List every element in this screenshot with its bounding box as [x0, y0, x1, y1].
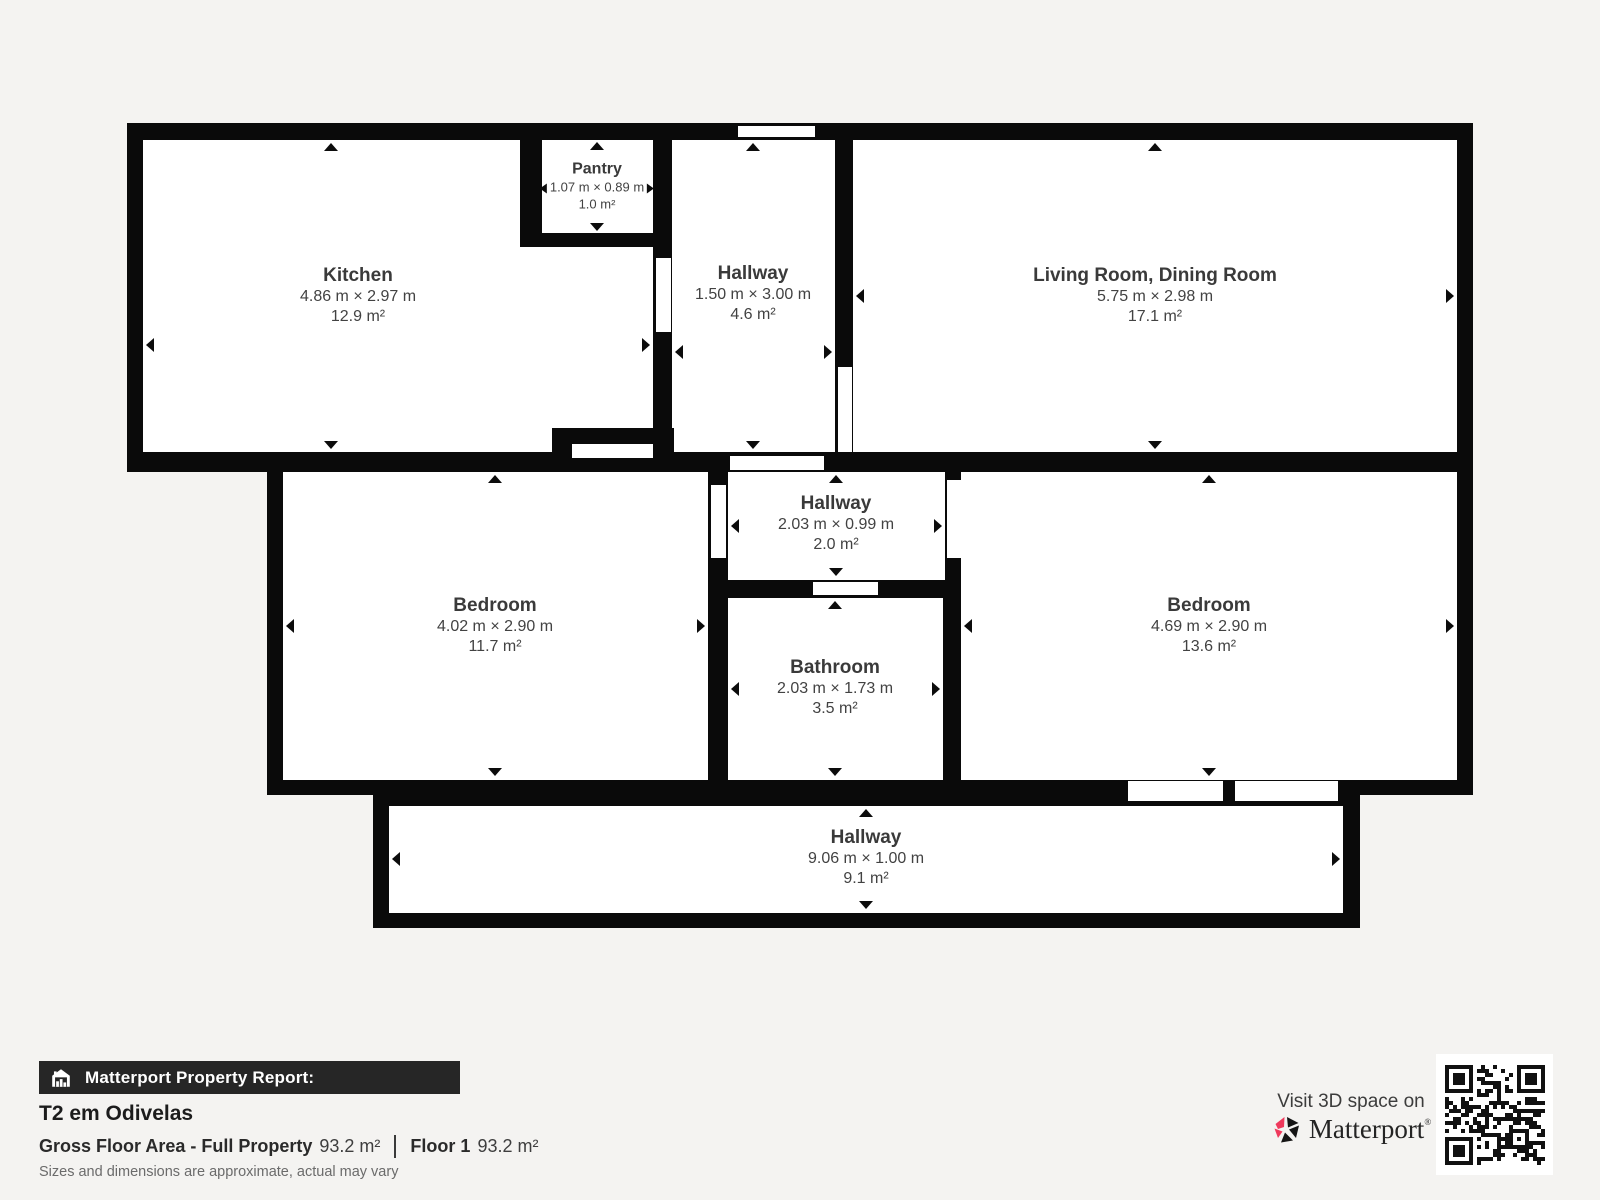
- dimension-arrow-right-icon: [1332, 852, 1340, 866]
- room-area: 1.0 m²: [540, 196, 654, 213]
- door-opening-bottom-hall-2: [1235, 781, 1338, 801]
- door-opening-kitchen-bottom: [572, 444, 653, 458]
- gross-floor-area-label: Gross Floor Area - Full Property: [39, 1136, 312, 1157]
- door-opening-entrance: [738, 126, 815, 137]
- dimension-arrow-down-icon: [1148, 441, 1162, 449]
- room-dimensions: 4.02 m × 2.90 m: [437, 617, 553, 637]
- room-name: Living Room, Dining Room: [1033, 265, 1277, 287]
- dimension-arrow-up-icon: [828, 601, 842, 609]
- dimension-arrow-right-icon: [1446, 289, 1454, 303]
- dimension-arrow-right-icon: [642, 338, 650, 352]
- dimension-arrow-up-icon: [1202, 475, 1216, 483]
- matterport-logo-icon: [1271, 1115, 1302, 1145]
- room-label-bedroom-right: Bedroom 4.69 m × 2.90 m 13.6 m²: [1151, 595, 1267, 657]
- dimension-arrow-left-icon: [286, 619, 294, 633]
- door-opening-bedroom-left: [711, 485, 726, 558]
- room-name: Bedroom: [1151, 595, 1267, 617]
- room-dimensions: 9.06 m × 1.00 m: [808, 849, 924, 869]
- divider: [394, 1135, 396, 1158]
- matterport-link[interactable]: Matterport®: [1249, 1114, 1453, 1145]
- room-label-living-dining: Living Room, Dining Room 5.75 m × 2.98 m…: [1033, 265, 1277, 327]
- door-opening-hallway-living: [838, 367, 852, 452]
- room-label-bathroom: Bathroom 2.03 m × 1.73 m 3.5 m²: [777, 657, 893, 719]
- room-area: 2.0 m²: [778, 535, 894, 555]
- room-name: Hallway: [808, 827, 924, 849]
- dimension-arrow-down-icon: [590, 223, 604, 231]
- property-report-page: Kitchen 4.86 m × 2.97 m 12.9 m² Pantry 1…: [0, 0, 1600, 1200]
- house-chart-icon: [50, 1067, 72, 1089]
- dimension-arrow-right-icon: [647, 183, 654, 193]
- room-dimensions: 5.75 m × 2.98 m: [1033, 287, 1277, 307]
- dimension-arrow-right-icon: [932, 682, 940, 696]
- dimension-arrow-up-icon: [590, 142, 604, 150]
- room-name: Hallway: [695, 263, 811, 285]
- door-opening-bedroom-right: [947, 480, 961, 558]
- report-banner-label: Matterport Property Report:: [85, 1068, 314, 1088]
- dimension-arrow-left-icon: [146, 338, 154, 352]
- dimension-arrow-left-icon: [392, 852, 400, 866]
- room-name: Kitchen: [300, 265, 416, 287]
- dimension-arrow-up-icon: [746, 143, 760, 151]
- room-name: Hallway: [778, 493, 894, 515]
- dimension-arrow-up-icon: [1148, 143, 1162, 151]
- room-area: 17.1 m²: [1033, 307, 1277, 327]
- property-title: T2 em Odivelas: [39, 1102, 193, 1126]
- floor-value: 93.2 m²: [477, 1136, 538, 1157]
- door-opening-hallways: [730, 456, 824, 470]
- room-area: 11.7 m²: [437, 637, 553, 657]
- disclaimer-text: Sizes and dimensions are approximate, ac…: [39, 1164, 398, 1180]
- room-area: 13.6 m²: [1151, 637, 1267, 657]
- dimension-arrow-up-icon: [324, 143, 338, 151]
- room-area: 12.9 m²: [300, 307, 416, 327]
- visit-3d-label: Visit 3D space on: [1249, 1091, 1453, 1113]
- door-opening-bathroom: [813, 582, 878, 595]
- dimension-arrow-left-icon: [731, 519, 739, 533]
- room-label-hallway-middle: Hallway 2.03 m × 0.99 m 2.0 m²: [778, 493, 894, 555]
- room-area: 3.5 m²: [777, 699, 893, 719]
- dimension-arrow-right-icon: [697, 619, 705, 633]
- room-label-hallway-top: Hallway 1.50 m × 3.00 m 4.6 m²: [695, 263, 811, 325]
- dimension-arrow-down-icon: [488, 768, 502, 776]
- registered-mark: ®: [1424, 1117, 1431, 1127]
- dimension-arrow-up-icon: [829, 475, 843, 483]
- dimension-arrow-down-icon: [859, 901, 873, 909]
- dimension-arrow-right-icon: [934, 519, 942, 533]
- room-name: Bathroom: [777, 657, 893, 679]
- dimension-arrow-left-icon: [540, 183, 547, 193]
- room-label-hallway-bottom: Hallway 9.06 m × 1.00 m 9.1 m²: [808, 827, 924, 889]
- room-name: Bedroom: [437, 595, 553, 617]
- dimension-arrow-right-icon: [1446, 619, 1454, 633]
- dimension-arrow-down-icon: [746, 441, 760, 449]
- room-label-bedroom-left: Bedroom 4.02 m × 2.90 m 11.7 m²: [437, 595, 553, 657]
- dimension-arrow-down-icon: [829, 568, 843, 576]
- dimension-arrow-left-icon: [675, 345, 683, 359]
- room-label-pantry: Pantry 1.07 m × 0.89 m 1.0 m²: [540, 160, 654, 213]
- room-dimensions: 1.07 m × 0.89 m: [540, 179, 654, 196]
- dimension-arrow-left-icon: [856, 289, 864, 303]
- report-banner: Matterport Property Report:: [39, 1061, 460, 1094]
- room-label-kitchen: Kitchen 4.86 m × 2.97 m 12.9 m²: [300, 265, 416, 327]
- room-area: 4.6 m²: [695, 305, 811, 325]
- room-name: Pantry: [540, 160, 654, 179]
- door-opening-bottom-hall-1: [1128, 781, 1223, 801]
- gross-floor-area-value: 93.2 m²: [319, 1136, 380, 1157]
- room-dimensions: 1.50 m × 3.00 m: [695, 285, 811, 305]
- floor-label: Floor 1: [410, 1136, 470, 1157]
- dimension-arrow-up-icon: [488, 475, 502, 483]
- room-dimensions: 2.03 m × 1.73 m: [777, 679, 893, 699]
- qr-code-pattern: [1445, 1065, 1545, 1165]
- dimension-arrow-left-icon: [731, 682, 739, 696]
- room-dimensions: 4.69 m × 2.90 m: [1151, 617, 1267, 637]
- dimension-arrow-up-icon: [859, 809, 873, 817]
- dimension-arrow-down-icon: [324, 441, 338, 449]
- matterport-wordmark: Matterport®: [1309, 1114, 1431, 1145]
- dimension-arrow-down-icon: [1202, 768, 1216, 776]
- room-dimensions: 2.03 m × 0.99 m: [778, 515, 894, 535]
- area-summary: Gross Floor Area - Full Property 93.2 m²…: [39, 1135, 538, 1158]
- room-area: 9.1 m²: [808, 869, 924, 889]
- qr-code: [1436, 1054, 1553, 1175]
- room-dimensions: 4.86 m × 2.97 m: [300, 287, 416, 307]
- dimension-arrow-right-icon: [824, 345, 832, 359]
- door-opening-kitchen-hallway: [656, 258, 671, 332]
- dimension-arrow-left-icon: [964, 619, 972, 633]
- dimension-arrow-down-icon: [828, 768, 842, 776]
